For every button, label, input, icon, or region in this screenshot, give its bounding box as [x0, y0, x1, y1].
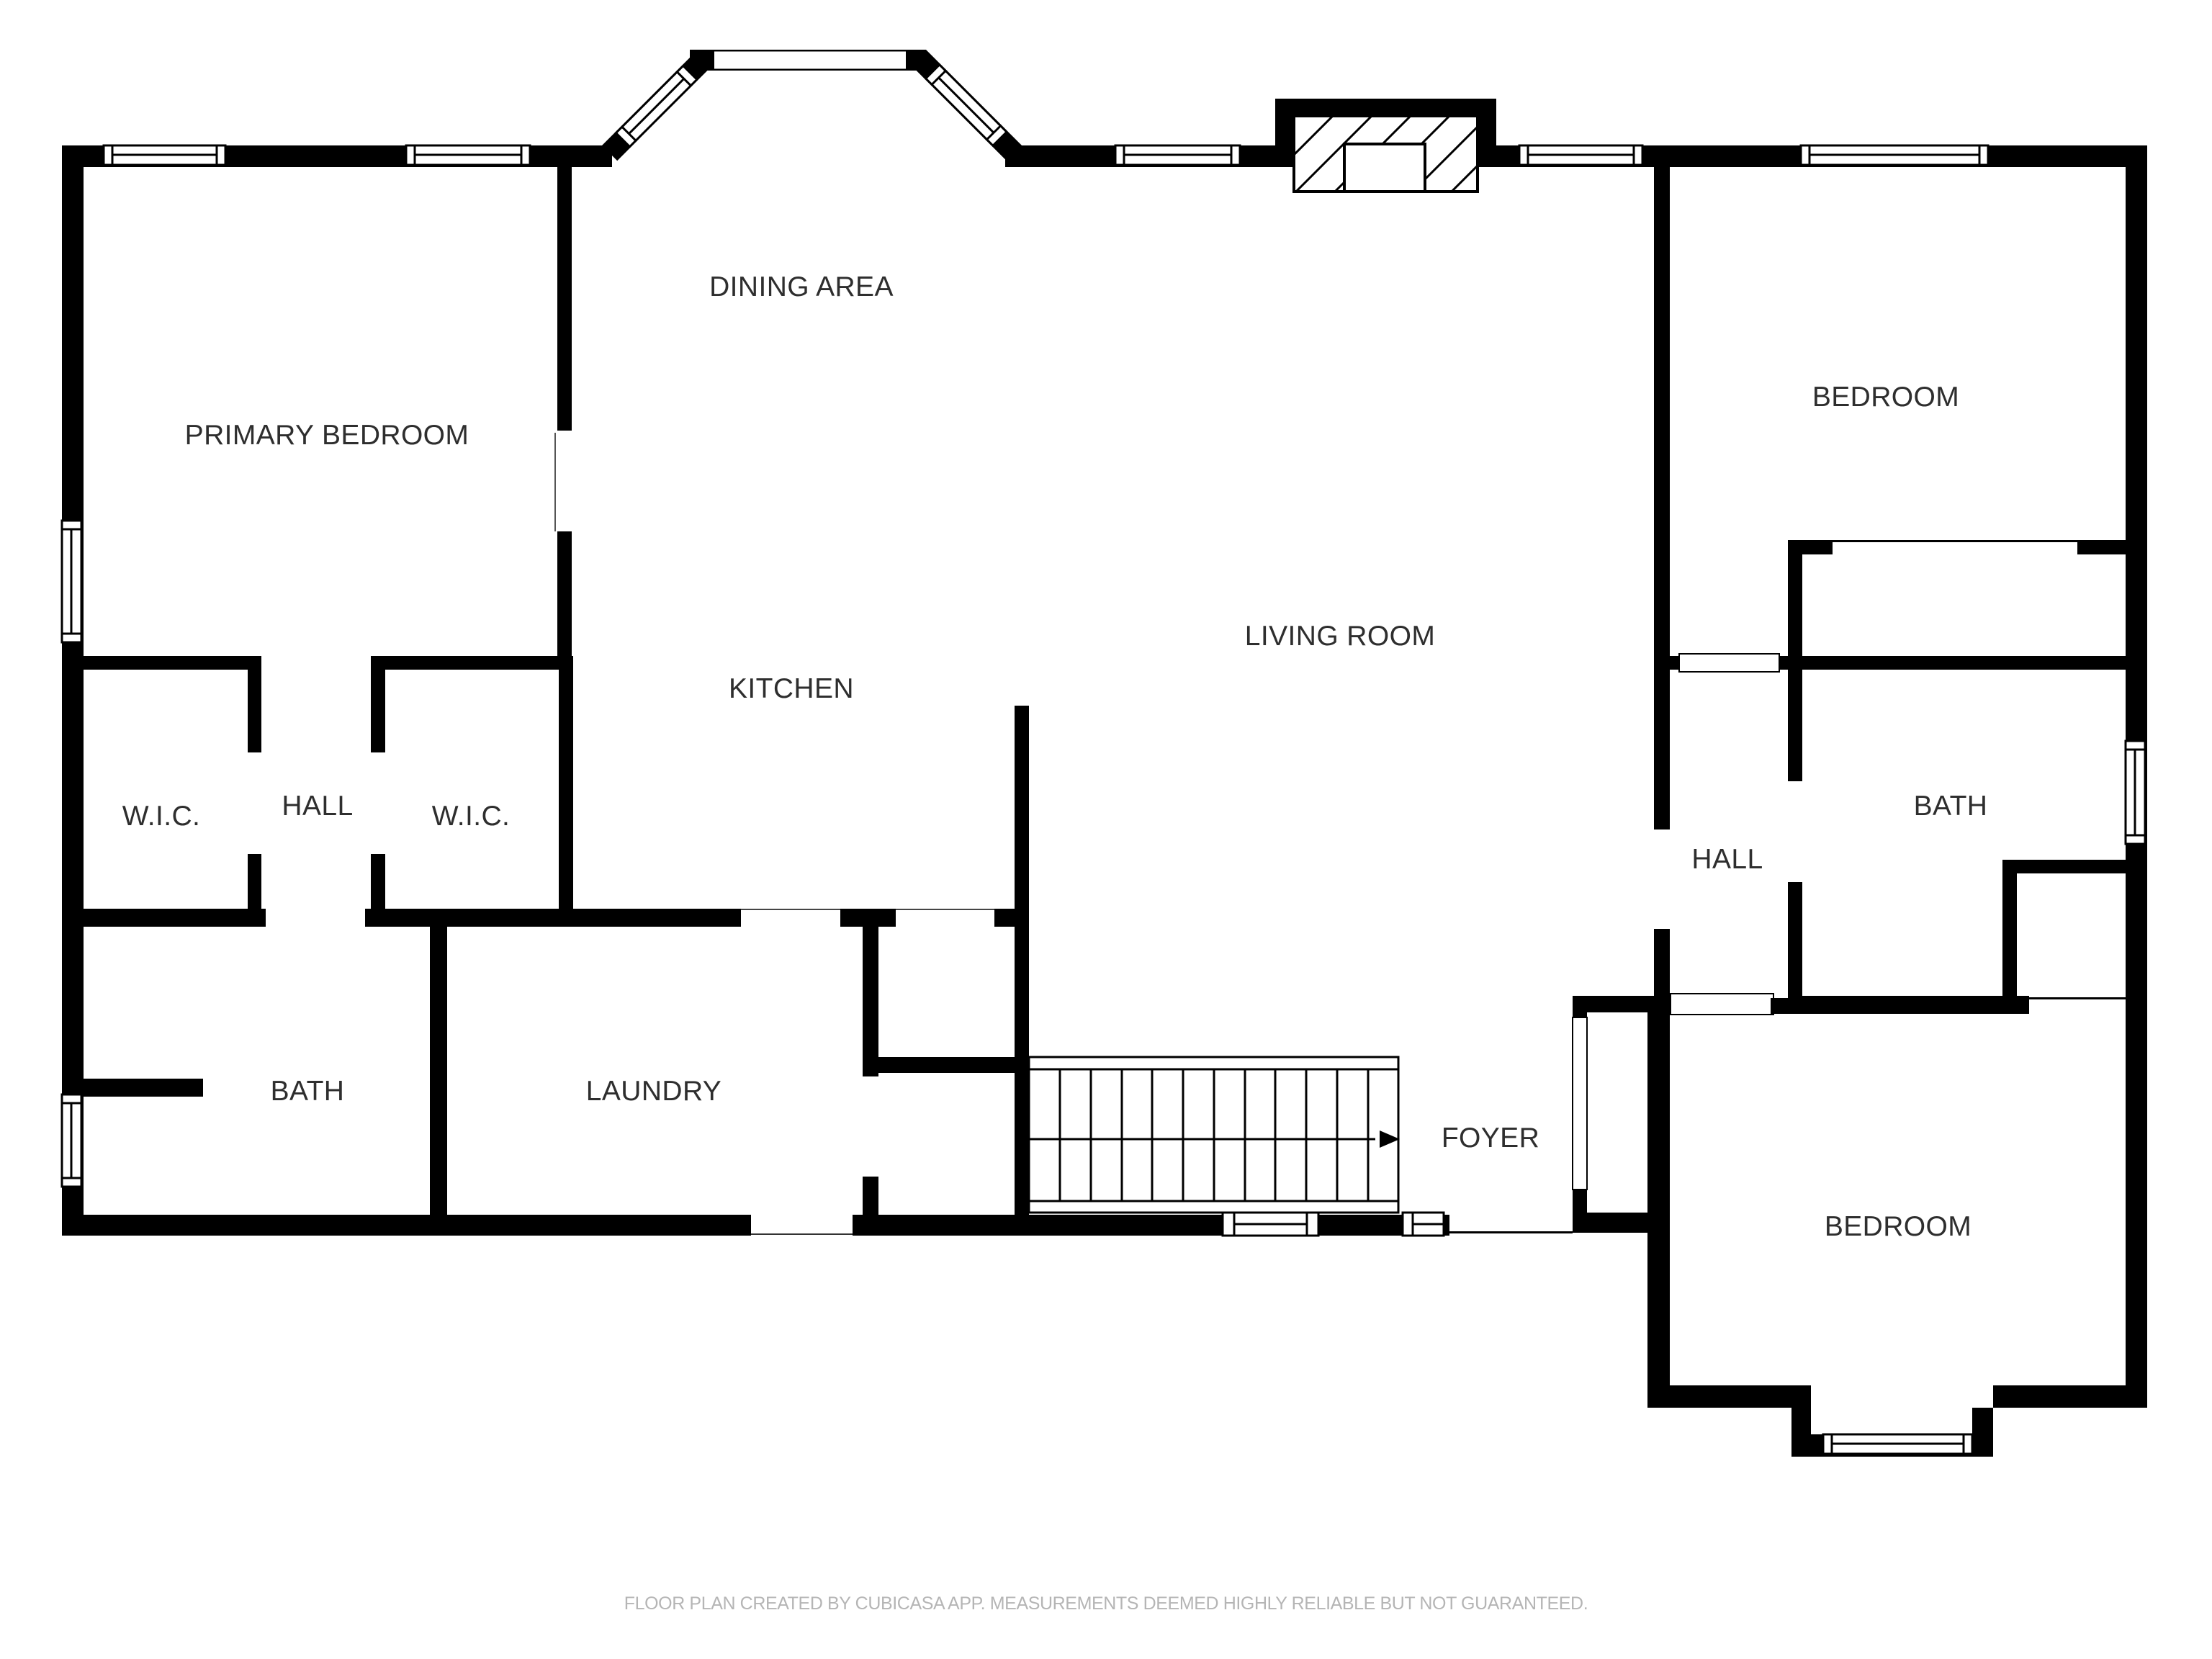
svg-text:HALL: HALL — [282, 791, 353, 822]
svg-text:W.I.C.: W.I.C. — [432, 801, 511, 832]
svg-text:KITCHEN: KITCHEN — [729, 673, 854, 704]
svg-text:DINING AREA: DINING AREA — [709, 271, 894, 302]
svg-text:FLOOR PLAN CREATED BY CUBICASA: FLOOR PLAN CREATED BY CUBICASA APP. MEAS… — [624, 1593, 1588, 1614]
svg-text:PRIMARY BEDROOM: PRIMARY BEDROOM — [185, 420, 469, 451]
svg-text:BATH: BATH — [271, 1076, 345, 1107]
svg-text:BEDROOM: BEDROOM — [1825, 1211, 1972, 1242]
svg-text:BEDROOM: BEDROOM — [1812, 382, 1959, 413]
svg-text:HALL: HALL — [1691, 844, 1763, 875]
svg-text:FOYER: FOYER — [1442, 1123, 1539, 1154]
svg-text:BATH: BATH — [1914, 791, 1988, 822]
svg-text:LAUNDRY: LAUNDRY — [586, 1076, 721, 1107]
svg-text:W.I.C.: W.I.C. — [122, 801, 201, 832]
svg-text:LIVING ROOM: LIVING ROOM — [1245, 621, 1435, 652]
